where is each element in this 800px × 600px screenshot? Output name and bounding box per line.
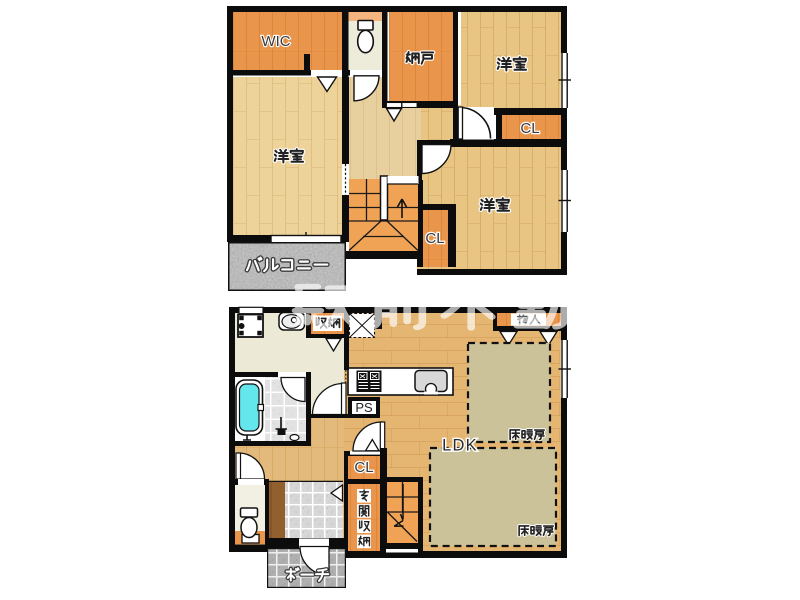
svg-text:CL: CL — [354, 459, 373, 476]
svg-text:WIC: WIC — [261, 33, 290, 50]
svg-text:CL: CL — [520, 120, 539, 137]
svg-text:CL: CL — [425, 230, 444, 247]
svg-text:PS: PS — [355, 400, 373, 415]
svg-text:LDK: LDK — [442, 437, 478, 455]
